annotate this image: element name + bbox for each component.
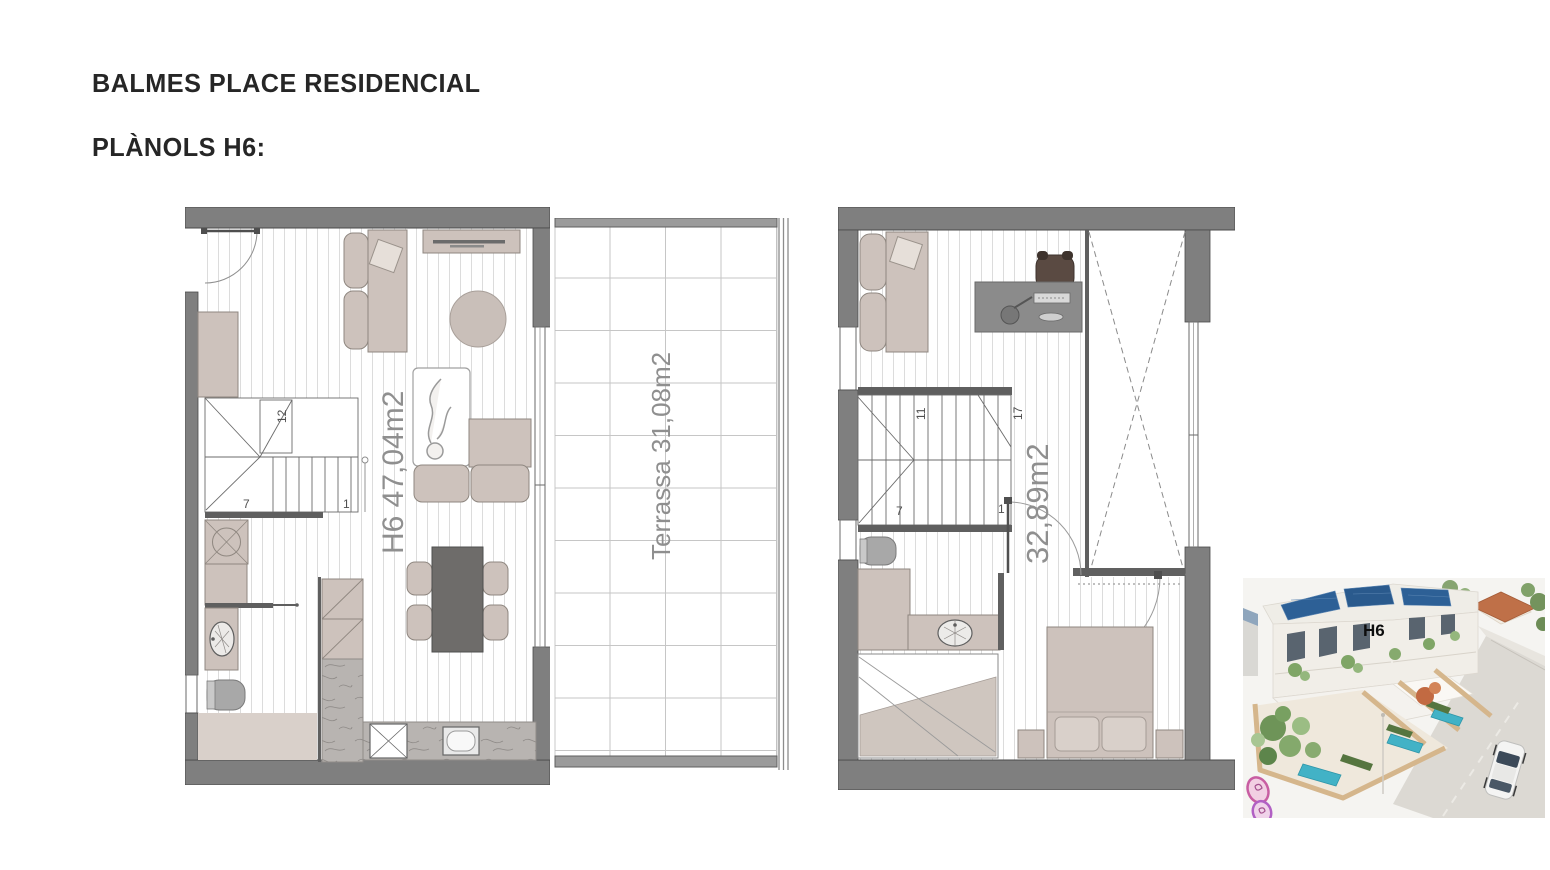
toilet-icon xyxy=(860,537,896,565)
upper-floor-plan: 11 17 7 1 xyxy=(838,207,1235,790)
sofa xyxy=(344,230,407,352)
stair-number: 11 xyxy=(914,407,928,420)
wardrobe xyxy=(858,654,998,758)
stair-wall xyxy=(205,512,323,518)
bathroom-window xyxy=(186,675,197,713)
terrace-railing xyxy=(779,218,788,770)
nightstand xyxy=(1018,730,1044,758)
toilet-icon xyxy=(207,680,245,710)
hall-cabinet xyxy=(198,312,238,397)
stair-number: 7 xyxy=(896,504,903,518)
desk-lamp-icon xyxy=(1001,306,1019,324)
neighbor-house-left xyxy=(1243,608,1258,676)
upper-stairs: 11 17 7 1 xyxy=(858,387,1025,532)
shower-tray-icon xyxy=(370,724,407,758)
appliance-icon xyxy=(443,727,479,755)
stair-number: 17 xyxy=(1011,406,1025,420)
dining-table xyxy=(432,547,483,652)
stair-number: 12 xyxy=(275,409,289,423)
terrace-wall-bottom xyxy=(555,756,777,767)
pillow xyxy=(1102,717,1146,751)
stair-number: 1 xyxy=(998,502,1005,516)
right-window xyxy=(1189,322,1198,547)
terrace-plan: Terrassa 31,08m2 xyxy=(550,218,790,770)
bath-cabinet xyxy=(858,569,910,650)
terrace-wall-top xyxy=(555,218,777,227)
tv-icon xyxy=(433,240,505,244)
stair-number: 1 xyxy=(343,497,350,511)
ground-floor-area-label: H6 47,04m2 xyxy=(377,391,410,554)
counter-strip xyxy=(363,722,536,760)
page-subtitle: PLÀNOLS H6: xyxy=(92,132,265,163)
stair-number: 7 xyxy=(243,497,250,511)
ground-floor-plan: 12 7 1 xyxy=(185,207,550,785)
upper-floor-area-label: 32,89m2 xyxy=(1020,443,1055,564)
mouse-icon xyxy=(1039,313,1063,321)
stairs: 12 7 1 xyxy=(205,398,368,518)
tree xyxy=(1521,583,1535,597)
page-title: BALMES PLACE RESIDENCIAL xyxy=(92,68,481,99)
terrace-area-label: Terrassa 31,08m2 xyxy=(646,352,676,560)
kitchen-island xyxy=(318,577,363,762)
bath-partition xyxy=(998,573,1004,650)
tv-console xyxy=(423,230,520,253)
left-window xyxy=(840,327,856,390)
counter-divider xyxy=(205,603,273,608)
orange-tree xyxy=(1429,682,1441,694)
bath-window xyxy=(840,520,856,560)
render-unit-label: H6 xyxy=(1363,621,1385,640)
terrace-glass-door xyxy=(535,327,545,647)
brochure-page: BALMES PLACE RESIDENCIAL PLÀNOLS H6: xyxy=(0,0,1550,870)
bathroom-floor xyxy=(198,713,317,760)
render-thumbnail: H6 xyxy=(1243,578,1545,818)
pillow xyxy=(1055,717,1099,751)
nightstand xyxy=(1156,730,1183,758)
round-rug xyxy=(450,291,506,347)
